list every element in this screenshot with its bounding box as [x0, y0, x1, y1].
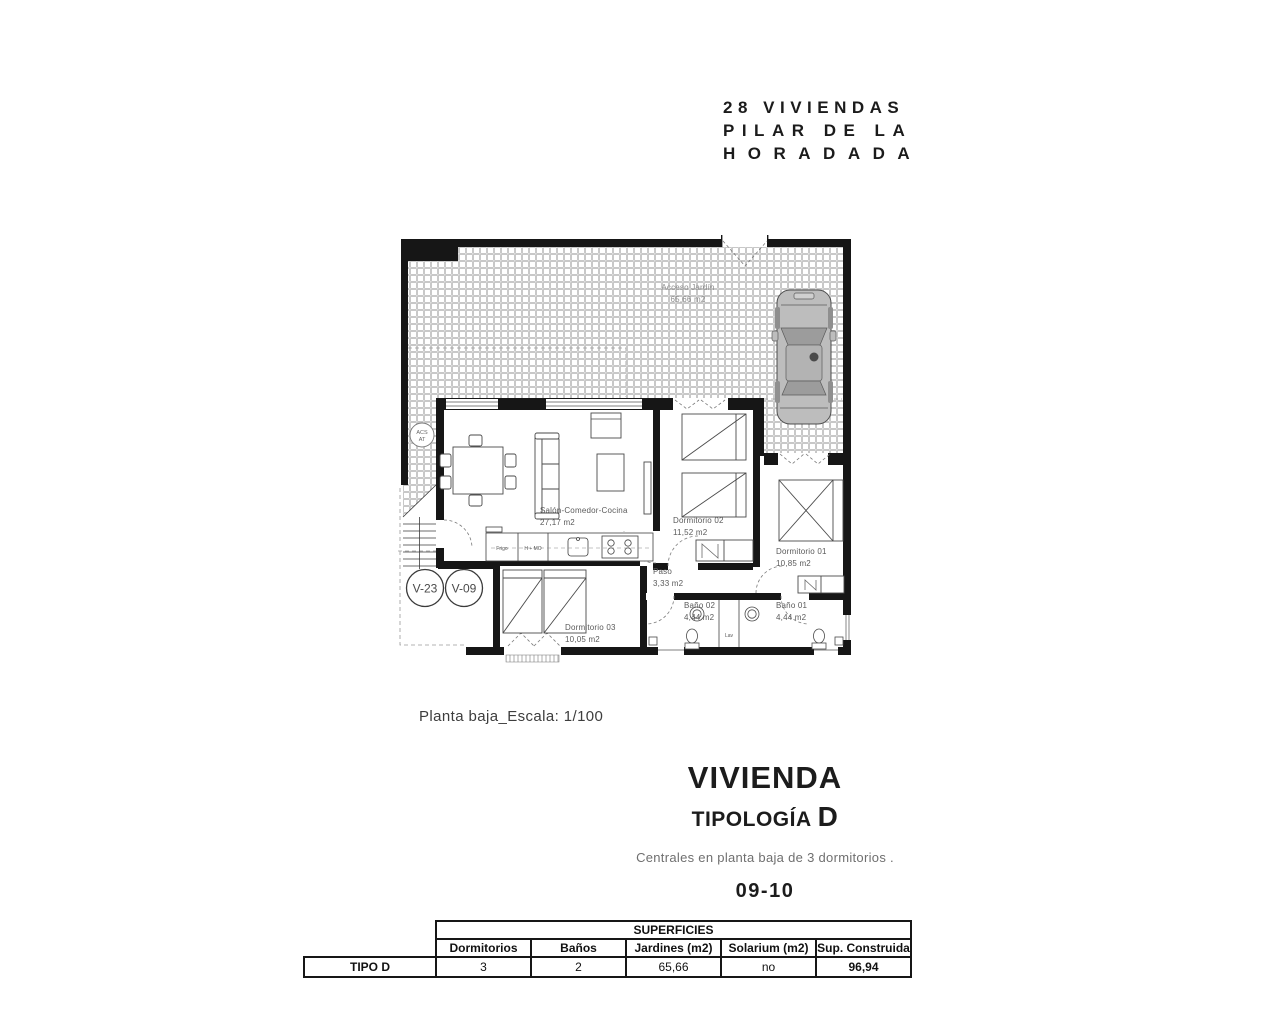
col-header-solarium: Solarium (m2) [721, 939, 816, 957]
toilet-bano01 [812, 629, 826, 649]
room-label-acceso-area: 65,66 m2 [671, 295, 706, 304]
bidet-bano02 [649, 637, 657, 645]
dining-table [440, 435, 516, 506]
kitchen-stove [602, 536, 638, 558]
heading-units: 09-10 [615, 880, 915, 903]
room-label-paso-area: 3,33 m2 [653, 579, 684, 588]
heading-title: VIVIENDA [615, 760, 915, 796]
project-title-line3: HORADADA [723, 142, 922, 165]
heading-subtitle: TIPOLOGÍAD [615, 801, 915, 833]
value-solarium: no [721, 957, 816, 977]
value-sup-construida: 96,94 [816, 957, 911, 977]
floor-plan-svg: Frigo H + MO [396, 233, 858, 671]
room-label-dorm02-area: 11,52 m2 [673, 528, 708, 537]
room-label-acceso-name: Acceso Jardín [661, 283, 714, 292]
acs-marker: ACS AT [410, 423, 434, 447]
washbasin-bano01 [745, 607, 759, 621]
room-label-bano02-name: Baño 02 [684, 601, 716, 610]
page: 28 VIVIENDAS PILAR DE LA HORADADA [0, 0, 1280, 1024]
room-label-dorm01-name: Dormitorio 01 [776, 547, 827, 556]
col-header-jardines: Jardines (m2) [626, 939, 721, 957]
bidet-bano01 [835, 637, 843, 645]
table-section-header: SUPERFICIES [436, 921, 911, 939]
kitchen-counter [486, 527, 653, 561]
bed-dorm02-b [682, 473, 746, 517]
floor-plan: Frigo H + MO [396, 233, 858, 671]
laundry-label: Lav [725, 633, 734, 639]
bed-dorm03-a [503, 570, 542, 633]
project-title: 28 VIVIENDAS PILAR DE LA HORADADA [723, 96, 922, 165]
bed-dorm02-a [682, 414, 746, 460]
areas-table: SUPERFICIES Dormitorios Baños Jardines (… [303, 920, 912, 978]
heading-type-letter: D [818, 801, 839, 832]
room-label-dorm01-area: 10,85 m2 [776, 559, 811, 568]
unit-marker-v23: V-23 [407, 570, 444, 607]
room-label-salon-area: 27,17 m2 [540, 518, 575, 527]
project-title-line1: 28 VIVIENDAS [723, 96, 922, 119]
acs-label-line2: AT [419, 437, 426, 443]
laundry-closet [719, 600, 739, 647]
col-header-banos: Baños [531, 939, 626, 957]
col-header-sup-construida: Sup. Construida [816, 939, 911, 957]
room-label-bano01-area: 4,44 m2 [776, 613, 807, 622]
project-title-line2: PILAR DE LA [723, 119, 922, 142]
scale-note: Planta baja_Escala: 1/100 [419, 708, 603, 725]
value-dormitorios: 3 [436, 957, 531, 977]
coffee-table [597, 454, 624, 491]
acs-label-line1: ACS [416, 430, 428, 436]
unit-v09-label: V-09 [452, 582, 477, 596]
room-label-dorm02-name: Dormitorio 02 [673, 516, 724, 525]
room-label-salon-name: Salón-Comedor-Cocina [540, 506, 628, 515]
wardrobe-dorm02 [696, 540, 753, 561]
unit-marker-v09: V-09 [446, 570, 483, 607]
col-header-dormitorios: Dormitorios [436, 939, 531, 957]
fridge-label: Frigo [496, 546, 508, 552]
table-row-label: TIPO D [304, 957, 436, 977]
value-banos: 2 [531, 957, 626, 977]
toilet-bano02 [685, 629, 699, 649]
room-label-dorm03-area: 10,05 m2 [565, 635, 600, 644]
value-jardines: 65,66 [626, 957, 721, 977]
unit-v23-label: V-23 [413, 582, 438, 596]
wardrobe-dorm01 [798, 576, 844, 593]
armchair [591, 413, 621, 438]
heading-block: VIVIENDA TIPOLOGÍAD Centrales en planta … [615, 760, 915, 903]
room-label-bano01-name: Baño 01 [776, 601, 808, 610]
bed-dorm01 [779, 480, 843, 541]
tv-unit [644, 462, 651, 514]
heading-description: Centrales en planta baja de 3 dormitorio… [615, 850, 915, 865]
heading-subtitle-text: TIPOLOGÍA [692, 808, 812, 831]
oven-microwave-label: H + MO [524, 546, 541, 552]
room-label-paso-name: Paso [653, 567, 672, 576]
room-label-dorm03-name: Dormitorio 03 [565, 623, 616, 632]
car-top-view [772, 290, 836, 424]
room-label-bano02-area: 4,44 m2 [684, 613, 715, 622]
